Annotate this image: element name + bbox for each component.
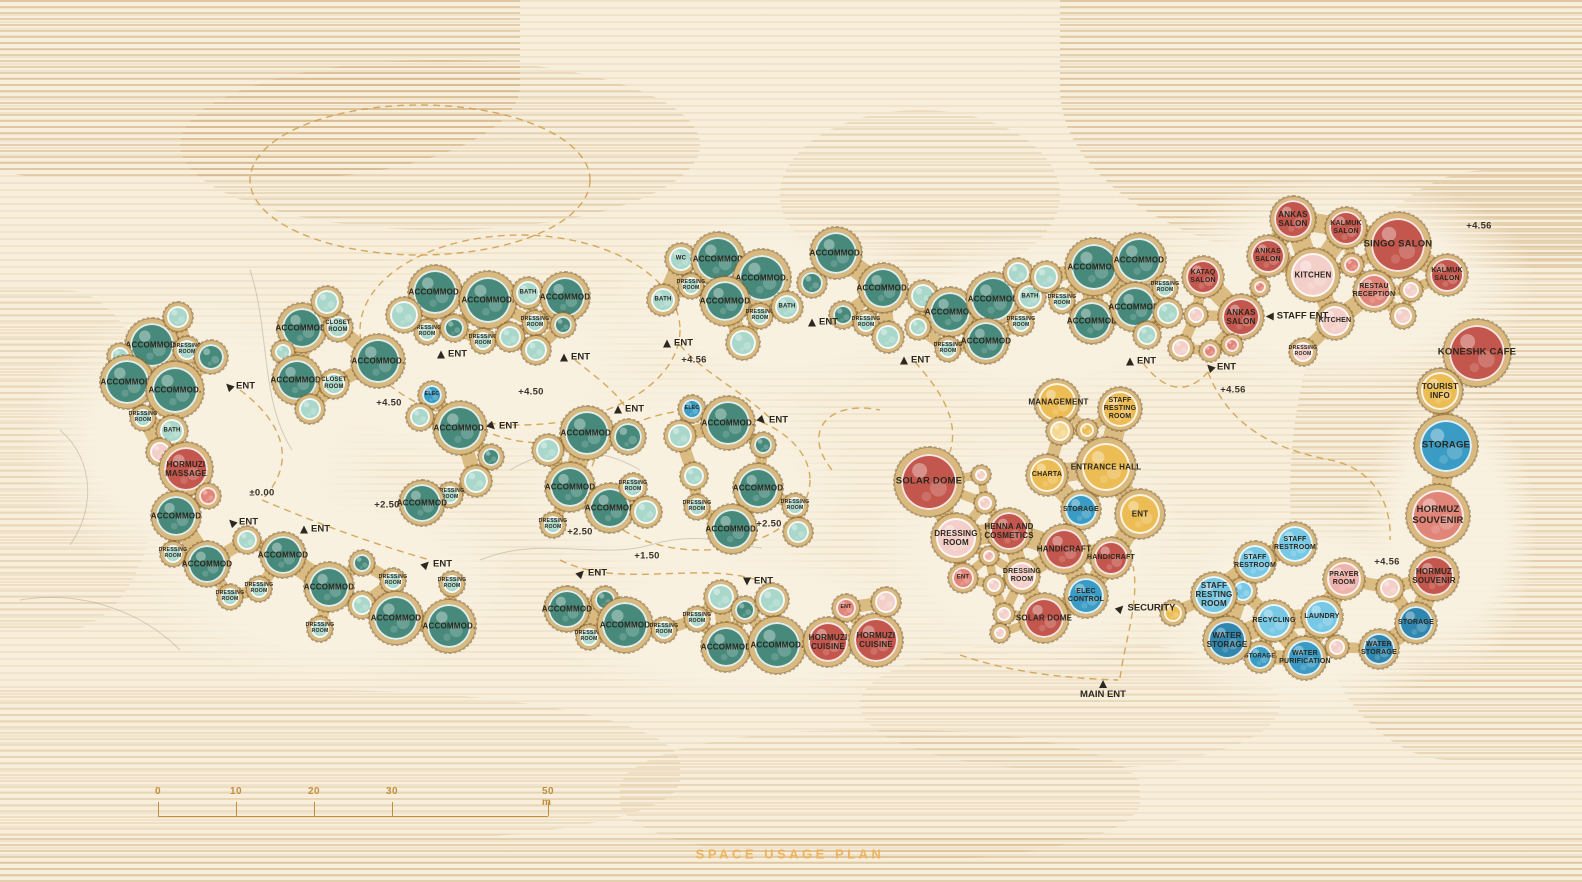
scale-label: 50 m — [542, 786, 554, 808]
scale-tick — [392, 802, 393, 816]
room-label: CLOSET ROOM — [316, 377, 352, 391]
room-label: ACCOMMOD — [298, 582, 360, 591]
elevation-label: +4.56 — [681, 355, 707, 366]
entrance-label: ENT — [1137, 356, 1156, 367]
scale-tick — [314, 802, 315, 816]
site-plan-canvas: ACCOMMOD.DRESSING ROOMACCOMMOD.ACCOMMOD.… — [0, 0, 1582, 882]
entrance-marker: ENT — [488, 421, 518, 432]
room-ankas-salon: ANKAS SALON — [1219, 295, 1263, 339]
entrance-marker: ENT — [1126, 356, 1156, 367]
decor-bubble — [1185, 304, 1207, 326]
room-label: ACCOMMOD — [957, 336, 1014, 345]
room-label: ACCOMMOD — [1063, 316, 1120, 325]
decor-bubble — [972, 466, 990, 484]
room-accommod: ACCOMMOD. — [101, 356, 153, 408]
room-accommod: ACCOMMOD. — [702, 397, 754, 449]
room-label: ANKAS SALON — [1242, 248, 1294, 264]
decor-bubble — [387, 298, 421, 332]
decor-bubble — [1391, 304, 1415, 328]
elevation-label: ±0.00 — [249, 488, 274, 499]
room-label: DRESSING ROOM — [616, 481, 650, 493]
room-label: DRESSING ROOM — [648, 624, 679, 636]
room-label: ENT — [829, 605, 863, 611]
room-dressing-room: DRESSING ROOM — [1153, 276, 1177, 300]
room-accommod: ACCOMMOD — [400, 481, 444, 525]
room-accommod: ACCOMMOD — [305, 563, 353, 611]
entrance-marker: ENT — [225, 381, 255, 392]
decor-bubble — [1077, 420, 1097, 440]
room-dressing-room: DRESSING ROOM — [652, 618, 676, 642]
room-dressing-room: DRESSING ROOM — [381, 569, 405, 593]
decor-bubble — [195, 341, 227, 373]
room-label: DRESSING ROOM — [1005, 317, 1036, 329]
decor-bubble — [665, 421, 695, 451]
entrance-label: ENT — [588, 568, 607, 579]
decor-bubble — [1341, 254, 1363, 276]
elevation-label: +2.50 — [756, 519, 782, 530]
room-ent: ENT — [1116, 490, 1164, 538]
room-dressing-room: DRESSING ROOM — [218, 585, 242, 609]
decor-bubble — [1377, 575, 1403, 601]
room-label: STAFF RESTING ROOM — [1093, 397, 1148, 421]
room-label: DRESSING ROOM — [779, 500, 810, 512]
room-dressing-room: DRESSING ROOM — [471, 329, 495, 353]
room-solar-dome: SOLAR DOME — [1020, 594, 1068, 642]
room-prayer-room: PRAYER ROOM — [1324, 559, 1364, 599]
room-label: STORAGE — [1056, 506, 1105, 514]
entrance-marker: ENT — [437, 349, 467, 360]
room-label: STAFF RESTROOM — [1268, 536, 1323, 552]
arrow-icon — [560, 353, 568, 361]
room-recycling: RECYCLING — [1254, 601, 1294, 641]
plan-title: SPACE USAGE PLAN — [696, 847, 885, 862]
room-label: KALMUK SALON — [1320, 220, 1372, 236]
room-label: STORAGE — [1406, 441, 1487, 452]
decor-bubble — [551, 313, 575, 337]
room-storage: STORAGE — [1062, 491, 1100, 529]
room-label: ACCOMMOD. — [415, 621, 483, 630]
room-label: ANKAS SALON — [1264, 210, 1321, 228]
room-label: DRESSING ROOM — [932, 343, 963, 355]
room-accommod: ACCOMMOD — [701, 277, 749, 325]
room-label: STORAGE — [1241, 654, 1280, 661]
scale-tick — [158, 802, 159, 816]
decor-bubble — [441, 315, 467, 341]
room-hormuz-souvenir: HORMUZ SOUVENIR — [1407, 485, 1469, 547]
room-label: ACCOMMOD — [145, 511, 207, 520]
room-label: ACCOMMOD — [254, 550, 311, 559]
room-dressing-room: DRESSING ROOM — [932, 514, 980, 562]
room-label: STAFF RESTING ROOM — [1185, 581, 1242, 609]
room-label: ACCOMMOD. — [852, 283, 914, 292]
entrance-label: ENT — [1217, 362, 1236, 373]
scale-label: 10 — [230, 786, 242, 797]
room-accommod: ACCOMMOD — [152, 492, 200, 540]
room-label: KONESHK CAFE — [1434, 348, 1520, 359]
room-staff-resting-room: STAFF RESTING ROOM — [1099, 388, 1141, 430]
arrow-icon — [900, 356, 908, 364]
decor-bubble — [681, 463, 707, 489]
room-dressing-room: DRESSING ROOM — [308, 617, 332, 641]
room-dressing-room: DRESSING ROOM — [1290, 339, 1316, 365]
room-label: DRESSING ROOM — [411, 326, 442, 338]
entrance-marker: STAFF ENT — [1266, 311, 1329, 322]
room-label: CLOSET ROOM — [320, 320, 356, 334]
arrow-icon — [756, 414, 767, 425]
scale-label: 20 — [308, 786, 320, 797]
room-label: DRESSING ROOM — [925, 529, 987, 547]
decor-bubble — [784, 518, 812, 546]
room-accommod: ACCOMMOD — [261, 533, 305, 577]
room-kataq-salon: KATAQ SALON — [1183, 257, 1223, 297]
room-storage: STORAGE — [1396, 603, 1436, 643]
decor-bubble — [164, 303, 192, 331]
decor-bubble — [732, 597, 758, 623]
elevation-label: +4.56 — [1374, 557, 1400, 568]
room-charta: CHARTA — [1027, 455, 1067, 495]
room-label: DRESSING ROOM — [436, 578, 467, 590]
entrance-label: STAFF ENT — [1277, 311, 1329, 322]
entrance-label: ENT — [448, 349, 467, 360]
room-dressing-room: DRESSING ROOM — [1005, 559, 1039, 593]
room-water-purification: WATER PURIFICATION — [1284, 637, 1326, 679]
room-label: HORMUZI MASSAGE — [152, 460, 220, 478]
room-label: MANAGEMENT — [1028, 397, 1085, 406]
room-handicraft: HANDICRAFT — [1040, 525, 1088, 573]
room-label: KALMUK SALON — [1421, 267, 1473, 283]
arrow-icon — [663, 339, 671, 347]
entrance-marker: ENT — [560, 352, 590, 363]
room-water-storage: WATER STORAGE — [1360, 630, 1398, 668]
arrow-icon — [808, 318, 816, 326]
room-label: BATH — [644, 297, 683, 304]
entrance-marker: ENT — [228, 517, 258, 528]
room-dressing-room: DRESSING ROOM — [523, 311, 547, 335]
room-label: SOLAR DOME — [885, 477, 973, 488]
room-ent: ENT — [949, 564, 977, 592]
elevation-label: +4.56 — [1466, 221, 1492, 232]
entrance-marker: ENT — [1206, 362, 1236, 373]
room-water-storage: WATER STORAGE — [1204, 617, 1250, 663]
entrance-marker: ENT — [577, 568, 607, 579]
scale-label: 0 — [155, 786, 161, 797]
room-accommod: ACCOMMOD. — [561, 407, 613, 459]
room-label: SINGO SALON — [1356, 240, 1439, 251]
arrow-icon — [223, 380, 234, 391]
room-accommod: ACCOMMOD. — [423, 600, 475, 652]
arrow-icon — [575, 567, 586, 578]
arrow-icon — [486, 420, 497, 431]
entrance-marker: ENT — [900, 355, 930, 366]
room-dressing-room: DRESSING ROOM — [620, 474, 646, 500]
arrow-icon — [300, 525, 308, 533]
room-solar-dome: SOLAR DOME — [895, 448, 963, 516]
room-label: ACCOMMOD — [534, 292, 596, 301]
room-label: ELEC — [415, 392, 449, 398]
room-label: DRESSING ROOM — [377, 575, 408, 587]
arrow-icon — [614, 405, 622, 413]
room-label: HANDICRAFT — [1033, 544, 1095, 553]
room-entrance-hall: ENTRANCE HALL — [1077, 438, 1135, 496]
elevation-label: +2.50 — [374, 500, 400, 511]
room-label: ENT — [945, 575, 981, 582]
arrow-icon — [1115, 602, 1126, 613]
room-label: RECYCLING — [1248, 617, 1300, 625]
decor-bubble — [1169, 336, 1193, 360]
elevation-label: +1.50 — [634, 551, 660, 562]
entrance-marker: ENT — [300, 524, 330, 535]
room-label: DRESSING ROOM — [243, 583, 274, 595]
arrow-icon — [1204, 361, 1215, 372]
room-label: RESTAU RECEPTION — [1348, 283, 1400, 299]
entrance-label: ENT — [236, 381, 255, 392]
room-accommod: ACCOMMOD. — [147, 362, 203, 418]
arrow-icon — [1266, 312, 1274, 320]
room-dressing-room: DRESSING ROOM — [936, 337, 960, 361]
room-label: HANDICRAFT — [1085, 554, 1137, 562]
room-label: HENNA AND COSMETICS — [980, 522, 1037, 540]
room-restau-reception: RESTAU RECEPTION — [1354, 271, 1394, 311]
room-label: DRESSING ROOM — [1000, 568, 1044, 584]
room-accommod: ACCOMMOD — [734, 464, 782, 512]
entrance-marker: MAIN ENT — [1080, 680, 1126, 700]
room-accommod: ACCOMMOD. — [708, 505, 756, 553]
decor-bubble — [234, 527, 260, 553]
scale-label: 30 — [386, 786, 398, 797]
room-closet-room: CLOSET ROOM — [320, 370, 348, 398]
room-accommod: ACCOMMOD — [185, 542, 229, 586]
room-label: DRESSING ROOM — [744, 310, 775, 322]
decor-bubble — [906, 315, 930, 339]
room-label: ACCOMMOD — [727, 483, 789, 492]
decor-bubble — [756, 584, 788, 616]
room-storage: STORAGE — [1415, 415, 1477, 477]
decor-bubble — [991, 624, 1009, 642]
room-accommod: ACCOMMOD — [370, 592, 422, 644]
room-staff-resting-room: STAFF RESTING ROOM — [1192, 573, 1236, 617]
room-label: HORMUZI CUISINE — [842, 631, 910, 649]
decor-bubble — [1134, 322, 1160, 348]
entrance-label: ENT — [769, 415, 788, 426]
entrance-label: ENT — [499, 421, 518, 432]
room-label: STORAGE — [1390, 619, 1442, 627]
decor-bubble — [522, 336, 550, 364]
decor-bubble — [1400, 279, 1422, 301]
room-bath: BATH — [648, 285, 678, 315]
room-handicraft: HANDICRAFT — [1091, 538, 1131, 578]
entrance-marker: ENT — [614, 404, 644, 415]
room-label: ACCOMMOD. — [804, 248, 869, 257]
decor-bubble — [1200, 341, 1220, 361]
decor-bubble — [1031, 262, 1061, 292]
room-accommod: ACCOMMOD. — [434, 402, 486, 454]
scale-bar-line — [158, 816, 548, 817]
decor-bubble — [994, 604, 1014, 624]
room-label: DRESSING ROOM — [681, 613, 712, 625]
room-label: ACCOMMOD. — [694, 418, 762, 427]
entrance-marker: SECURITY — [1116, 603, 1175, 614]
decor-bubble — [1154, 299, 1182, 327]
room-bath: BATH — [772, 292, 802, 322]
room-label: ACCOMMOD — [538, 604, 595, 613]
room-label: BATH — [153, 428, 192, 435]
room-label: ANKAS SALON — [1212, 308, 1269, 326]
room-label: ACCOMMOD. — [426, 423, 494, 432]
room-label: DRESSING ROOM — [127, 412, 158, 424]
room-accommod: ACCOMMOD — [964, 319, 1008, 363]
arrow-icon — [1099, 680, 1107, 688]
room-dressing-room: DRESSING ROOM — [131, 406, 155, 430]
room-accommod: ACCOMMOD. — [352, 335, 404, 387]
room-label: HORMUZ SOUVENIR — [1403, 567, 1465, 585]
room-label: DRESSING ROOM — [681, 501, 712, 513]
room-tourist-info: TOURIST INFO — [1418, 369, 1462, 413]
elevation-label: +2.50 — [567, 527, 593, 538]
room-label: WATER STORAGE — [1197, 631, 1257, 649]
room-label: STAFF RESTROOM — [1229, 554, 1281, 570]
decor-bubble — [533, 435, 563, 465]
room-label: ACCOMMOD — [1105, 255, 1173, 264]
decor-bubble — [296, 395, 324, 423]
room-ankas-salon: ANKAS SALON — [1271, 197, 1315, 241]
entrance-label: SECURITY — [1127, 603, 1175, 614]
room-hormuz-souvenir: HORMUZ SOUVENIR — [1410, 552, 1458, 600]
arrow-icon — [743, 577, 751, 585]
room-label: DRESSING ROOM — [1149, 282, 1180, 294]
room-dressing-room: DRESSING ROOM — [685, 495, 709, 519]
room-staff-restroom: STAFF RESTROOM — [1274, 523, 1316, 565]
room-label: DRESSING ROOM — [519, 317, 550, 329]
room-label: ACCOMMOD. — [701, 524, 763, 533]
room-accommod: ACCOMMOD — [598, 598, 652, 652]
room-label: ACCOMMOD — [694, 296, 756, 305]
room-label: WATER PURIFICATION — [1278, 650, 1333, 666]
decor-bubble — [1047, 418, 1073, 444]
decor-bubble — [872, 588, 900, 616]
room-label: DRESSING ROOM — [467, 335, 498, 347]
room-dressing-room: DRESSING ROOM — [679, 274, 703, 298]
room-dressing-room: DRESSING ROOM — [1009, 311, 1033, 335]
elevation-label: +4.50 — [376, 398, 402, 409]
room-accommod: ACCOMMOD — [545, 587, 589, 631]
room-label: TOURIST INFO — [1411, 382, 1468, 400]
elevation-label: +4.50 — [518, 387, 544, 398]
decor-bubble — [631, 497, 661, 527]
decor-bubble — [496, 323, 524, 351]
arrow-icon — [420, 558, 431, 569]
entrance-label: ENT — [911, 355, 930, 366]
entrance-marker: ENT — [743, 576, 773, 587]
room-label: BATH — [1011, 294, 1050, 301]
room-label: ACCOMMOD — [393, 498, 450, 507]
room-elec-control: ELEC CONTROL — [1065, 575, 1107, 617]
room-label: LAUNDRY — [1296, 613, 1348, 621]
decor-bubble — [873, 322, 903, 352]
room-label: SOLAR DOME — [1013, 613, 1075, 622]
entrance-label: ENT — [754, 576, 773, 587]
room-label: ENT — [1109, 509, 1171, 518]
arrow-icon — [1126, 357, 1134, 365]
room-laundry: LAUNDRY — [1302, 597, 1342, 637]
room-accommod: ACCOMMOD. — [859, 264, 907, 312]
arrow-icon — [226, 516, 237, 527]
decor-bubble — [611, 420, 645, 454]
decor-bubble — [1222, 335, 1242, 355]
room-accommod: ACCOMMOD. — [460, 272, 516, 328]
entrance-marker: ENT — [422, 559, 452, 570]
room-closet-room: CLOSET ROOM — [324, 313, 352, 341]
room-label: CHARTA — [1021, 471, 1073, 479]
room-label: ACCOMMOD. — [344, 356, 412, 365]
room-hormuzi-cuisine: HORMUZI CUISINE — [850, 614, 902, 666]
room-dressing-room: DRESSING ROOM — [440, 572, 464, 596]
entrance-label: ENT — [625, 404, 644, 415]
room-dressing-room: DRESSING ROOM — [541, 513, 565, 537]
room-label: DRESSING ROOM — [675, 280, 706, 292]
room-label: PRAYER ROOM — [1318, 571, 1370, 587]
decor-bubble — [980, 547, 998, 565]
decor-bubble — [479, 445, 503, 469]
decor-bubble — [350, 551, 374, 575]
entrance-marker: ENT — [758, 415, 788, 426]
room-label: WATER STORAGE — [1354, 641, 1403, 657]
room-label: DRESSING ROOM — [1286, 346, 1320, 358]
room-accommod: ACCOMMOD. — [811, 228, 861, 278]
room-label: ACCOMMOD — [539, 482, 601, 491]
decor-bubble — [727, 327, 759, 359]
entrance-label: MAIN ENT — [1080, 689, 1126, 700]
room-kalmuk-salon: KALMUK SALON — [1427, 255, 1467, 295]
entrance-marker: ENT — [663, 338, 693, 349]
entrance-marker: ENT — [808, 317, 838, 328]
decor-bubble — [196, 484, 220, 508]
room-label: DRESSING ROOM — [537, 519, 568, 531]
entrance-label: ENT — [239, 517, 258, 528]
room-dressing-room: DRESSING ROOM — [783, 494, 807, 518]
entrance-label: ENT — [674, 338, 693, 349]
room-label: ACCOMMOD. — [139, 385, 212, 394]
room-dressing-room: DRESSING ROOM — [247, 577, 271, 601]
decor-bubble — [751, 433, 775, 457]
room-label: KITCHEN — [1279, 270, 1347, 279]
room-dressing-room: DRESSING ROOM — [1050, 289, 1074, 313]
room-label: DRESSING ROOM — [157, 548, 188, 560]
decor-bubble — [312, 287, 342, 317]
room-label: DRESSING ROOM — [214, 591, 245, 603]
room-label: DRESSING ROOM — [1046, 295, 1077, 307]
room-label: BATH — [768, 304, 807, 311]
scale-tick — [236, 802, 237, 816]
room-label: KATAQ SALON — [1177, 269, 1229, 285]
room-label: ELEC CONTROL — [1059, 588, 1114, 604]
room-henna-and-cosmetics: HENNA AND COSMETICS — [987, 509, 1031, 553]
elevation-label: +4.56 — [1220, 385, 1246, 396]
room-label: HORMUZ SOUVENIR — [1398, 505, 1479, 527]
room-dressing-room: DRESSING ROOM — [685, 607, 709, 631]
decor-bubble — [975, 493, 995, 513]
entrance-label: ENT — [311, 524, 330, 535]
arrow-icon — [437, 350, 445, 358]
entrance-label: ENT — [571, 352, 590, 363]
room-label: DRESSING ROOM — [304, 623, 335, 635]
room-label: ENTRANCE HALL — [1068, 462, 1143, 471]
room-ent: ENT — [833, 595, 859, 621]
entrance-label: ENT — [819, 317, 838, 328]
entrance-label: ENT — [433, 559, 452, 570]
connector-lines — [0, 0, 1582, 882]
room-label: ACCOMMOD — [178, 559, 235, 568]
decor-bubble — [1251, 278, 1269, 296]
